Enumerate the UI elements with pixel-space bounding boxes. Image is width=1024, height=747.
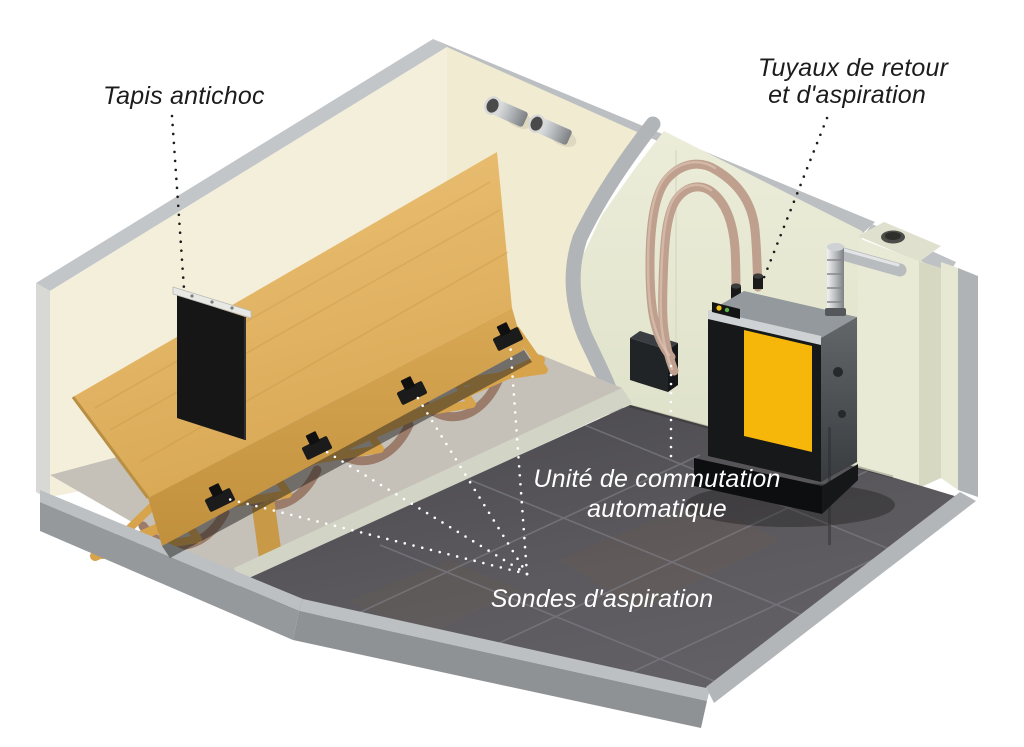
label-sondes: Sondes d'aspiration [491,585,714,613]
boiler-door [744,330,812,452]
impact-mat [173,287,251,440]
chimney-flue-hole-inner [885,232,901,240]
left-wall-end-face [36,283,50,500]
panel-indicator-green [725,308,729,312]
flue-collar [825,308,846,316]
flue-vertical [827,246,844,314]
label-tapis-antichoc: Tapis antichoc [103,82,265,110]
boiler-side [821,317,857,482]
label-tuyaux-line1: Tuyaux de retour [758,54,950,82]
right-wall-outer-edge [958,268,978,497]
chimney-front [858,238,919,488]
label-unite-line1: Unité de commutation [533,465,780,493]
flue-elbow [827,243,844,251]
label-tuyaux-line2: et d'aspiration [768,81,926,109]
impact-mat-panel [177,295,245,440]
label-unite-line2: automatique [587,495,727,523]
panel-indicator-yellow [716,305,721,310]
chimney-side [919,261,941,488]
right-wall [941,262,958,490]
illustration-pellet-storage-room: Tapis antichoc Tuyaux de retour et d'asp… [0,0,1024,747]
scene-canvas: Tapis antichoc Tuyaux de retour et d'asp… [0,0,1024,747]
